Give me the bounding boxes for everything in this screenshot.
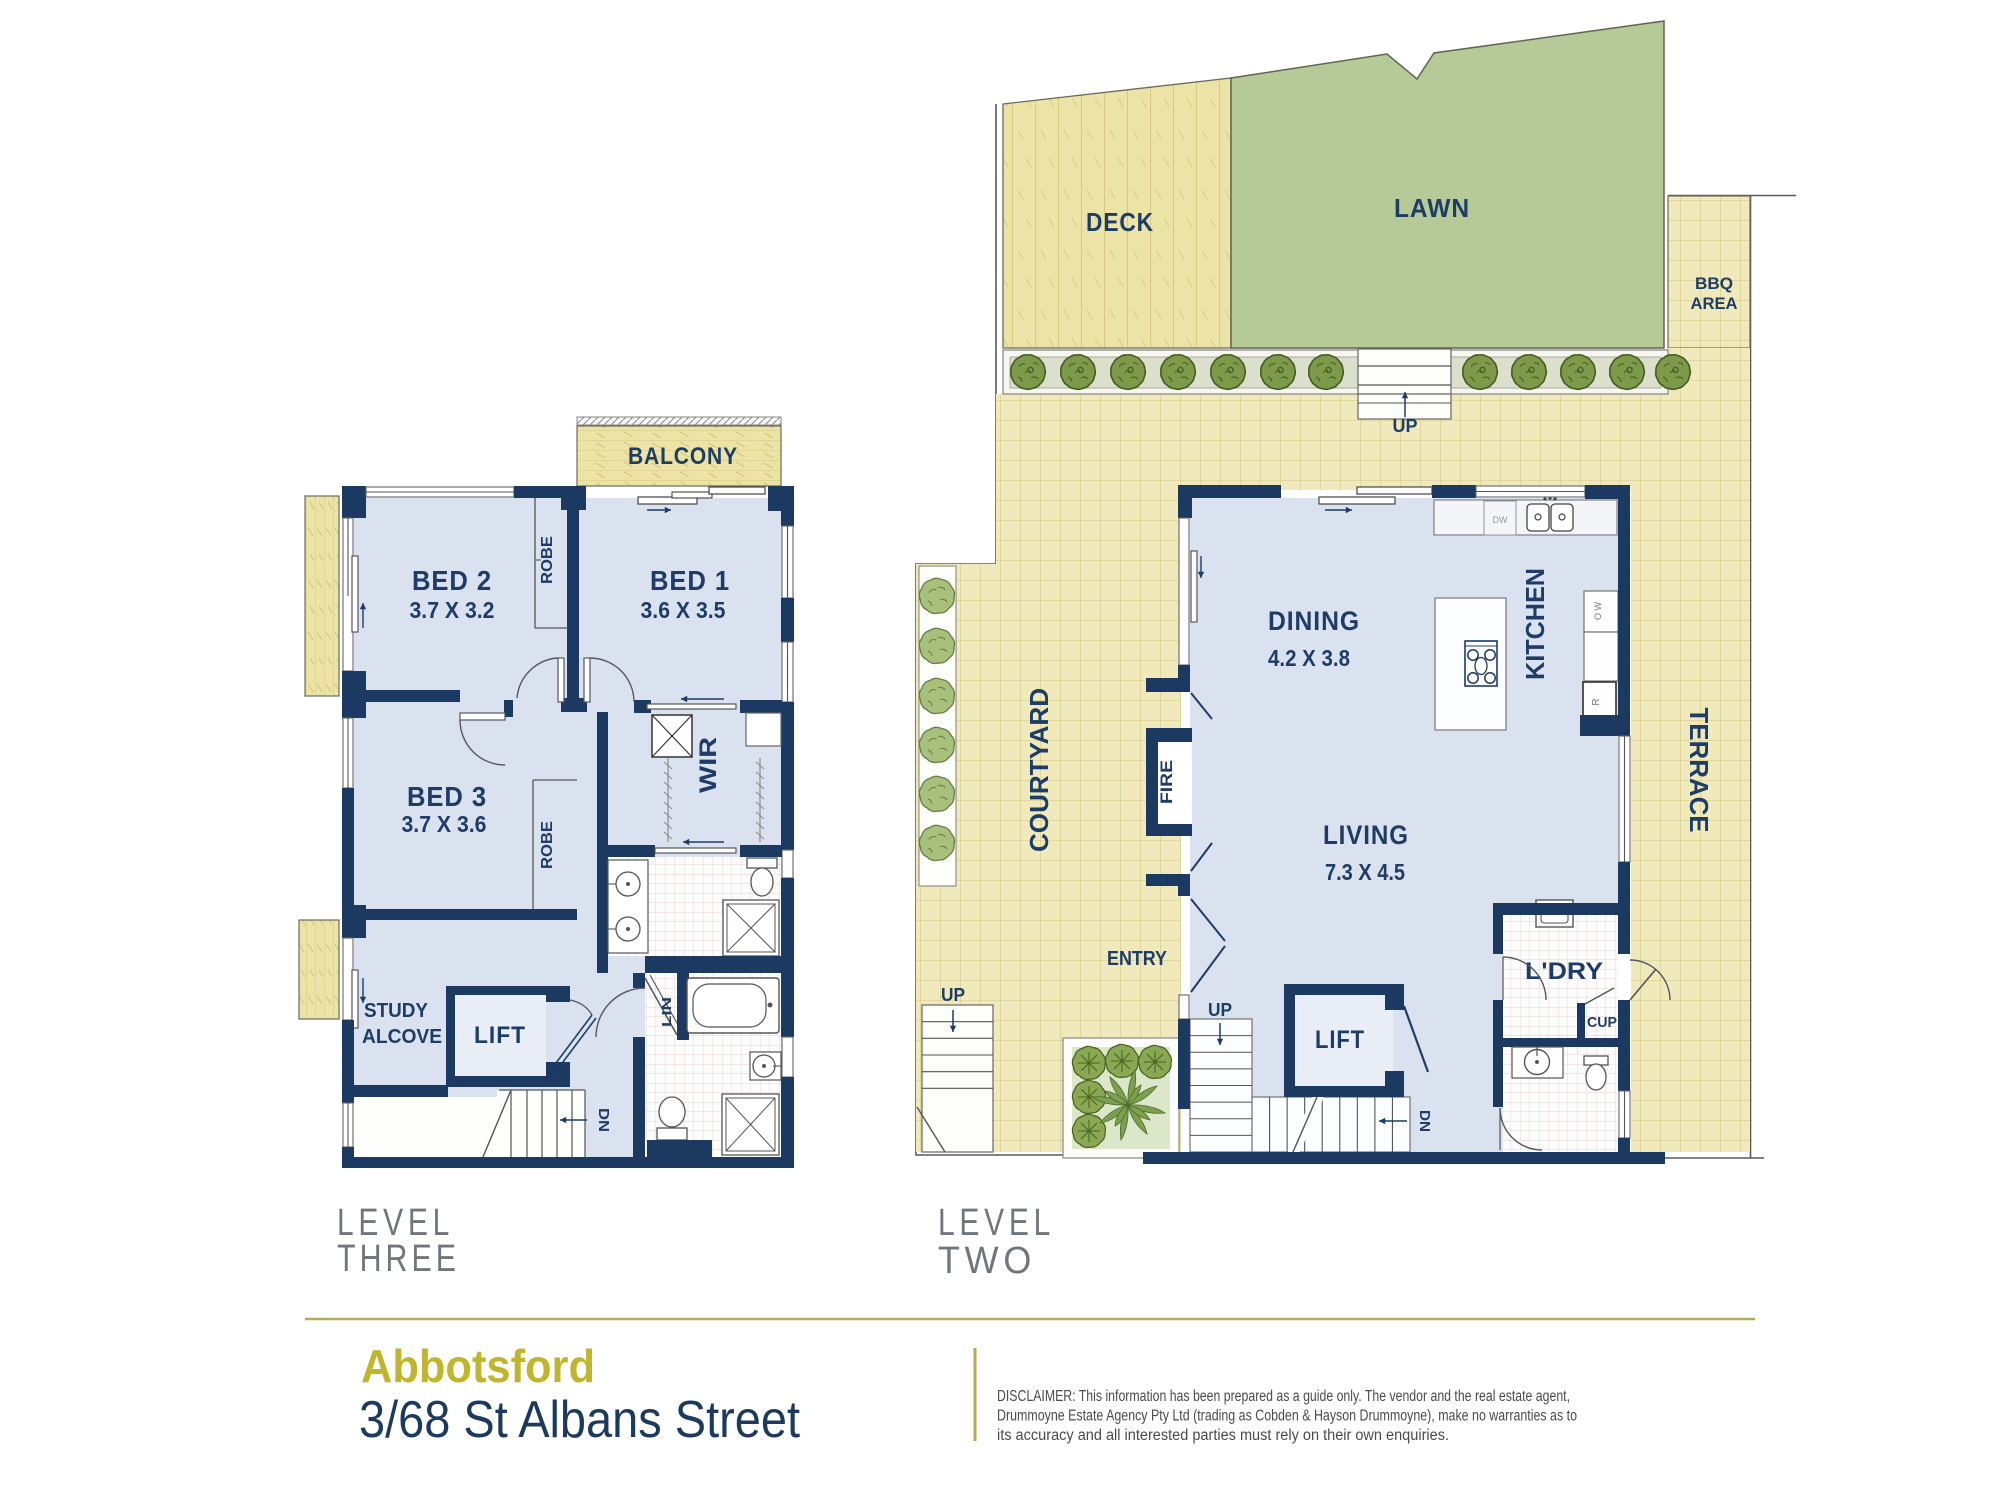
svg-text:Abbotsford: Abbotsford — [361, 1340, 595, 1392]
svg-text:AREA: AREA — [1691, 294, 1738, 313]
svg-text:7.3 X 4.5: 7.3 X 4.5 — [1325, 859, 1405, 885]
svg-text:4.2 X 3.8: 4.2 X 3.8 — [1268, 645, 1350, 671]
svg-text:FIRE: FIRE — [1157, 760, 1176, 804]
svg-text:DINING: DINING — [1268, 606, 1360, 636]
svg-text:BED 3: BED 3 — [407, 781, 487, 812]
svg-text:STUDY: STUDY — [364, 1000, 429, 1022]
svg-text:UP: UP — [1393, 416, 1418, 436]
svg-text:LIFT: LIFT — [1315, 1026, 1365, 1054]
svg-text:BED 2: BED 2 — [412, 565, 492, 596]
svg-text:BALCONY: BALCONY — [628, 443, 738, 470]
svg-text:WIR: WIR — [695, 737, 722, 793]
svg-text:BBQ: BBQ — [1695, 274, 1733, 293]
svg-text:THREE: THREE — [337, 1238, 460, 1280]
svg-text:DECK: DECK — [1086, 207, 1154, 237]
svg-text:CUP: CUP — [1587, 1014, 1617, 1031]
svg-text:its accuracy and all intereste: its accuracy and all interested parties … — [997, 1427, 1449, 1444]
svg-text:BED 1: BED 1 — [650, 565, 730, 596]
svg-text:DN: DN — [595, 1108, 612, 1132]
svg-text:TERRACE: TERRACE — [1684, 708, 1714, 833]
svg-text:LIVING: LIVING — [1323, 820, 1409, 850]
svg-text:UP: UP — [941, 985, 965, 1005]
svg-text:ROBE: ROBE — [539, 536, 556, 584]
svg-text:LIN: LIN — [659, 997, 674, 1027]
svg-text:LEVEL: LEVEL — [938, 1202, 1055, 1244]
svg-text:ENTRY: ENTRY — [1107, 948, 1168, 970]
svg-text:UP: UP — [1208, 1000, 1232, 1020]
svg-text:KITCHEN: KITCHEN — [1520, 568, 1550, 680]
svg-text:ALCOVE: ALCOVE — [362, 1026, 442, 1048]
svg-text:3/68 St Albans Street: 3/68 St Albans Street — [359, 1391, 800, 1449]
svg-text:L'DRY: L'DRY — [1525, 958, 1603, 985]
svg-text:Drummoyne Estate Agency Pty Lt: Drummoyne Estate Agency Pty Ltd (trading… — [997, 1408, 1577, 1425]
svg-text:ROBE: ROBE — [539, 821, 556, 869]
svg-text:TWO: TWO — [938, 1240, 1036, 1282]
svg-text:O W: O W — [1593, 601, 1603, 620]
svg-text:COURTYARD: COURTYARD — [1024, 688, 1054, 852]
svg-text:LAWN: LAWN — [1394, 193, 1470, 223]
svg-text:DISCLAIMER: This information h: DISCLAIMER: This information has been pr… — [997, 1388, 1570, 1405]
svg-text:3.7 X 3.6: 3.7 X 3.6 — [402, 811, 487, 837]
svg-text:DN: DN — [1416, 1110, 1433, 1132]
svg-text:R: R — [1591, 698, 1602, 705]
svg-text:3.6 X 3.5: 3.6 X 3.5 — [641, 597, 726, 623]
svg-text:3.7 X 3.2: 3.7 X 3.2 — [410, 597, 495, 623]
svg-text:LIFT: LIFT — [474, 1022, 526, 1049]
svg-text:DW: DW — [1493, 515, 1508, 525]
